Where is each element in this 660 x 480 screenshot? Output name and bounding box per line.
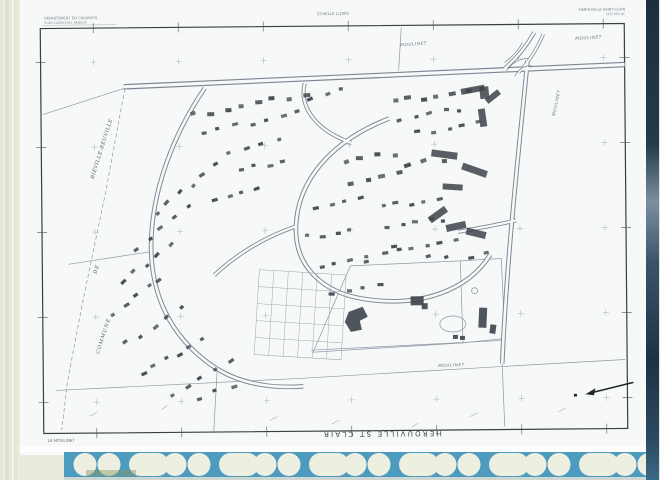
house	[393, 98, 398, 102]
house	[329, 292, 335, 295]
building	[478, 308, 487, 328]
house	[374, 152, 380, 156]
sprocket-hole-round	[458, 453, 481, 476]
building	[422, 303, 428, 309]
house	[457, 109, 461, 112]
house	[356, 156, 363, 160]
film-smudge	[86, 470, 136, 476]
scan-canvas: DÉPARTEMENT DU CALVADOS PLAN CADASTRAL R…	[0, 0, 660, 480]
house	[393, 153, 398, 157]
house	[320, 235, 326, 239]
house	[238, 104, 243, 108]
house	[339, 87, 343, 91]
house	[225, 108, 231, 112]
sprocket-hole-pill	[579, 453, 619, 476]
house	[433, 94, 439, 99]
sprocket-hole-round	[434, 453, 457, 476]
sprocket-hole-pill	[399, 453, 439, 476]
row-building	[442, 183, 462, 190]
house	[382, 204, 386, 208]
house	[366, 178, 372, 183]
sprocket-hole-pill	[219, 453, 259, 476]
header-left-line2: PLAN CADASTRAL RÉNOVÉ	[44, 20, 87, 25]
sprocket-hole-round	[524, 453, 547, 476]
building	[453, 335, 458, 339]
sprocket-hole-round	[548, 453, 571, 476]
house	[377, 283, 383, 286]
building	[460, 336, 465, 340]
header-left-line1: DÉPARTEMENT DU CALVADOS	[44, 15, 98, 20]
scanned-cadastral-sheet-viewer: DÉPARTEMENT DU CALVADOS PLAN CADASTRAL R…	[0, 0, 660, 480]
building	[489, 324, 496, 334]
house	[305, 234, 309, 237]
house	[401, 223, 405, 226]
sprocket-hole-round	[614, 453, 637, 476]
film-white-strip	[20, 446, 648, 452]
sprocket-hole-round	[278, 453, 301, 476]
film-strip	[64, 452, 660, 480]
house	[444, 108, 449, 111]
house	[347, 289, 352, 292]
sprocket-hole-round	[368, 453, 391, 476]
house	[364, 255, 368, 259]
sprocket-hole-round	[188, 453, 211, 476]
house	[412, 220, 418, 223]
left-edge-stripes	[0, 0, 20, 480]
house	[442, 159, 447, 163]
row-building	[479, 86, 489, 99]
sprocket-hole-pill	[309, 453, 349, 476]
house	[207, 112, 214, 116]
house	[268, 96, 274, 100]
sprocket-hole-pill	[489, 453, 529, 476]
header-center: ÉCHELLE 1/2000	[317, 11, 349, 16]
corner-label-left: LE MOULINET	[48, 438, 76, 443]
house	[425, 244, 429, 248]
sprocket-hole-round	[164, 453, 187, 476]
house	[347, 228, 351, 232]
header-right-line2: SECTION AC	[606, 12, 626, 16]
right-scanner-band	[646, 0, 659, 480]
house	[384, 226, 389, 229]
sprocket-hole-round	[254, 453, 277, 476]
house	[361, 286, 365, 289]
house	[404, 95, 411, 100]
house	[255, 100, 262, 104]
house	[286, 97, 291, 101]
house	[336, 232, 341, 236]
sheet-title-inverted: HEROUVILLE ST CLAIR	[322, 429, 442, 438]
house	[303, 93, 310, 98]
sprocket-hole-round	[344, 453, 367, 476]
house	[448, 127, 452, 131]
house	[421, 97, 427, 102]
house	[441, 219, 445, 222]
